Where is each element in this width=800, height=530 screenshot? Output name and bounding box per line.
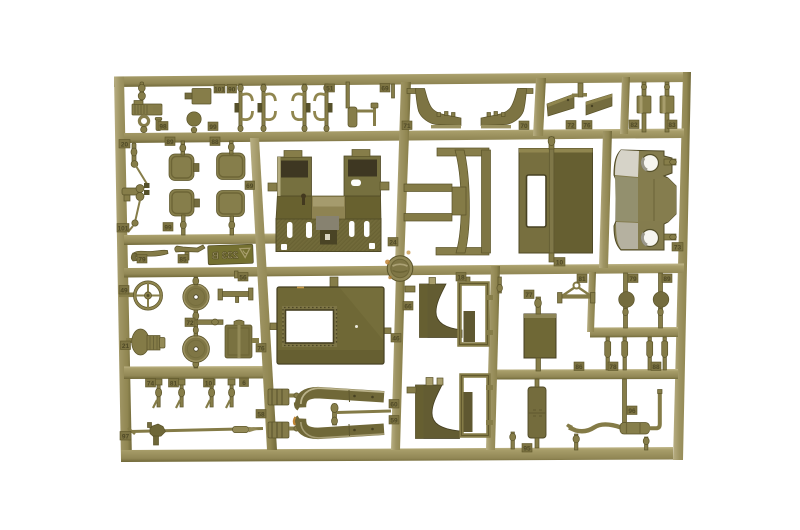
- svg-text:79: 79: [138, 256, 146, 263]
- svg-text:89: 89: [663, 276, 671, 283]
- svg-text:70: 70: [520, 123, 528, 130]
- svg-text:99: 99: [164, 224, 172, 231]
- svg-text:10: 10: [556, 259, 564, 266]
- svg-text:76: 76: [257, 345, 265, 352]
- svg-text:20: 20: [121, 141, 129, 148]
- svg-text:233 B: 233 B: [212, 250, 239, 262]
- svg-text:74: 74: [147, 380, 155, 387]
- svg-text:88: 88: [211, 139, 219, 146]
- svg-text:83: 83: [668, 122, 676, 129]
- svg-text:72: 72: [186, 320, 194, 327]
- svg-text:73: 73: [674, 244, 682, 251]
- svg-text:95: 95: [523, 445, 531, 452]
- svg-text:79: 79: [629, 276, 637, 283]
- svg-text:49: 49: [120, 287, 128, 294]
- svg-text:77: 77: [525, 292, 533, 299]
- svg-text:56: 56: [239, 274, 247, 281]
- svg-text:60: 60: [390, 401, 398, 408]
- svg-text:101: 101: [118, 225, 129, 232]
- svg-text:66: 66: [404, 303, 412, 310]
- svg-text:86: 86: [575, 364, 583, 371]
- svg-text:82: 82: [630, 122, 638, 129]
- svg-text:24: 24: [389, 239, 397, 246]
- svg-text:85: 85: [179, 256, 187, 263]
- svg-text:76: 76: [583, 122, 591, 129]
- svg-text:59: 59: [390, 417, 398, 424]
- svg-text:81: 81: [170, 380, 178, 387]
- svg-text:71: 71: [403, 123, 411, 130]
- svg-text:78: 78: [609, 364, 617, 371]
- svg-text:90: 90: [228, 86, 236, 93]
- svg-text:58: 58: [257, 411, 265, 418]
- svg-text:97: 97: [122, 433, 130, 440]
- svg-text:88: 88: [652, 364, 660, 371]
- svg-text:51: 51: [326, 86, 334, 93]
- svg-text:96: 96: [628, 408, 636, 415]
- svg-text:69: 69: [246, 183, 254, 190]
- svg-text:10: 10: [205, 380, 213, 387]
- svg-text:99: 99: [209, 124, 217, 131]
- svg-text:46: 46: [392, 335, 400, 342]
- svg-text:69: 69: [381, 85, 389, 92]
- svg-text:81: 81: [578, 276, 586, 283]
- svg-text:98: 98: [159, 123, 167, 130]
- svg-text:89: 89: [166, 139, 174, 146]
- svg-text:21: 21: [122, 343, 130, 350]
- svg-text:72: 72: [567, 122, 575, 129]
- svg-text:101: 101: [214, 86, 225, 93]
- svg-text:18: 18: [457, 274, 465, 281]
- svg-text:6: 6: [242, 380, 246, 387]
